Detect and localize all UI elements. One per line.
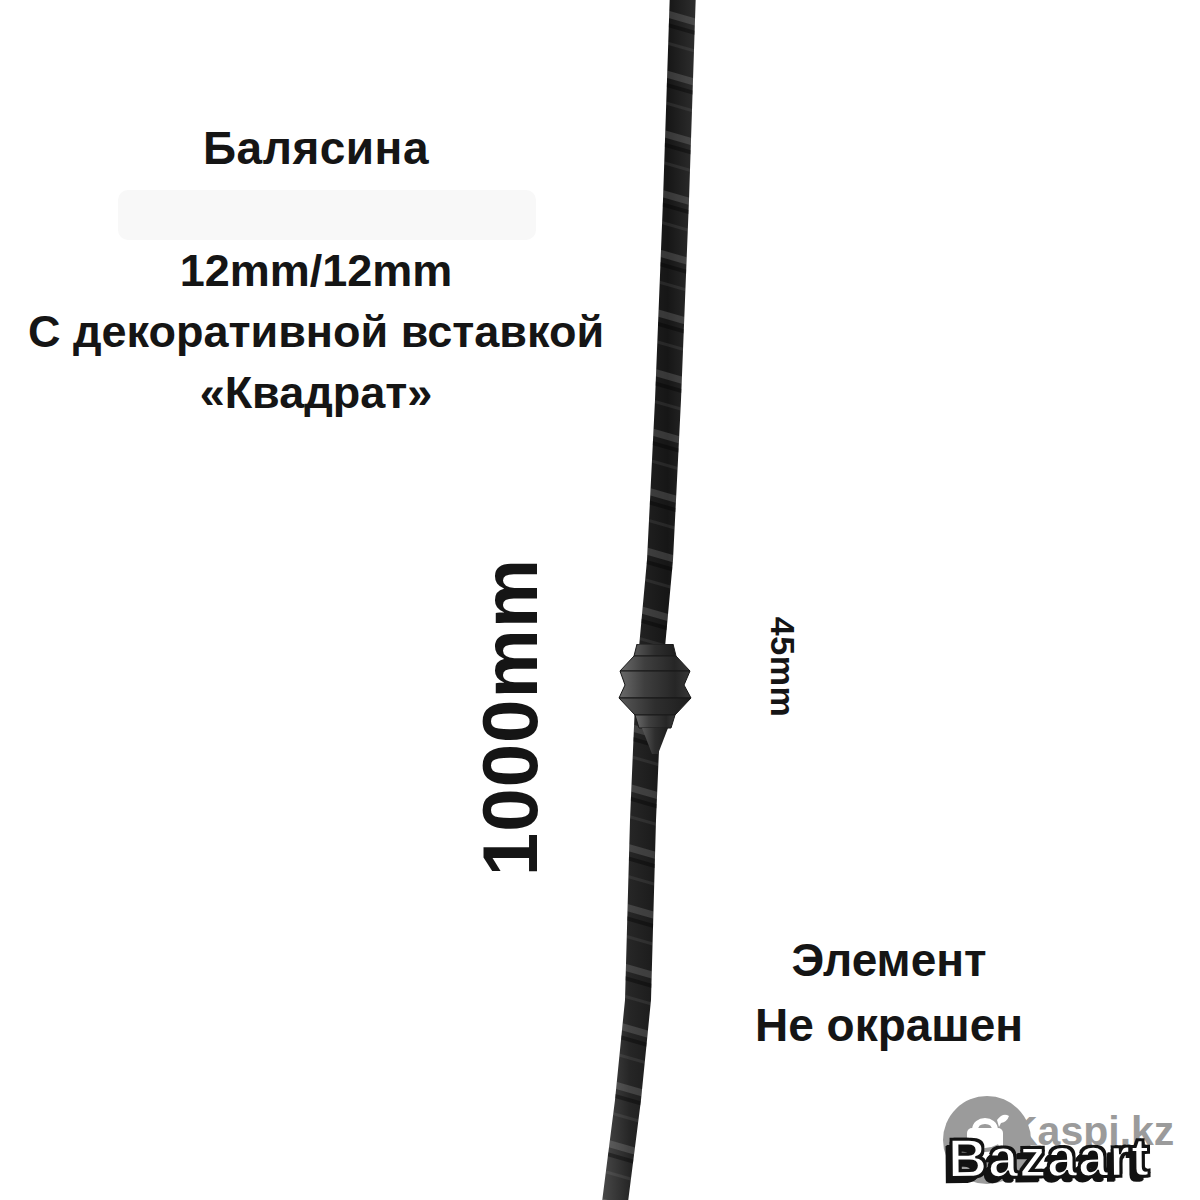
product-title: Балясина: [0, 122, 632, 174]
finish-note-line1: Элемент: [693, 928, 1085, 993]
spec-insert-name: «Квадрат»: [0, 362, 632, 423]
product-image: Балясина 12mm/12mm С декоративной вставк…: [0, 0, 1200, 1200]
insert-dimension-label: 45mm: [763, 607, 803, 727]
finish-note: Элемент Не окрашен: [693, 928, 1085, 1058]
finish-note-line2: Не окрашен: [693, 993, 1085, 1058]
product-specs: 12mm/12mm С декоративной вставкой «Квадр…: [0, 240, 632, 423]
square-insert-graphic: [613, 644, 697, 760]
spec-insert-desc: С декоративной вставкой: [0, 301, 632, 362]
height-dimension-label: 1000mm: [465, 537, 555, 897]
seller-logo-label: Bazaart: [948, 1125, 1199, 1189]
spec-size: 12mm/12mm: [0, 240, 632, 301]
